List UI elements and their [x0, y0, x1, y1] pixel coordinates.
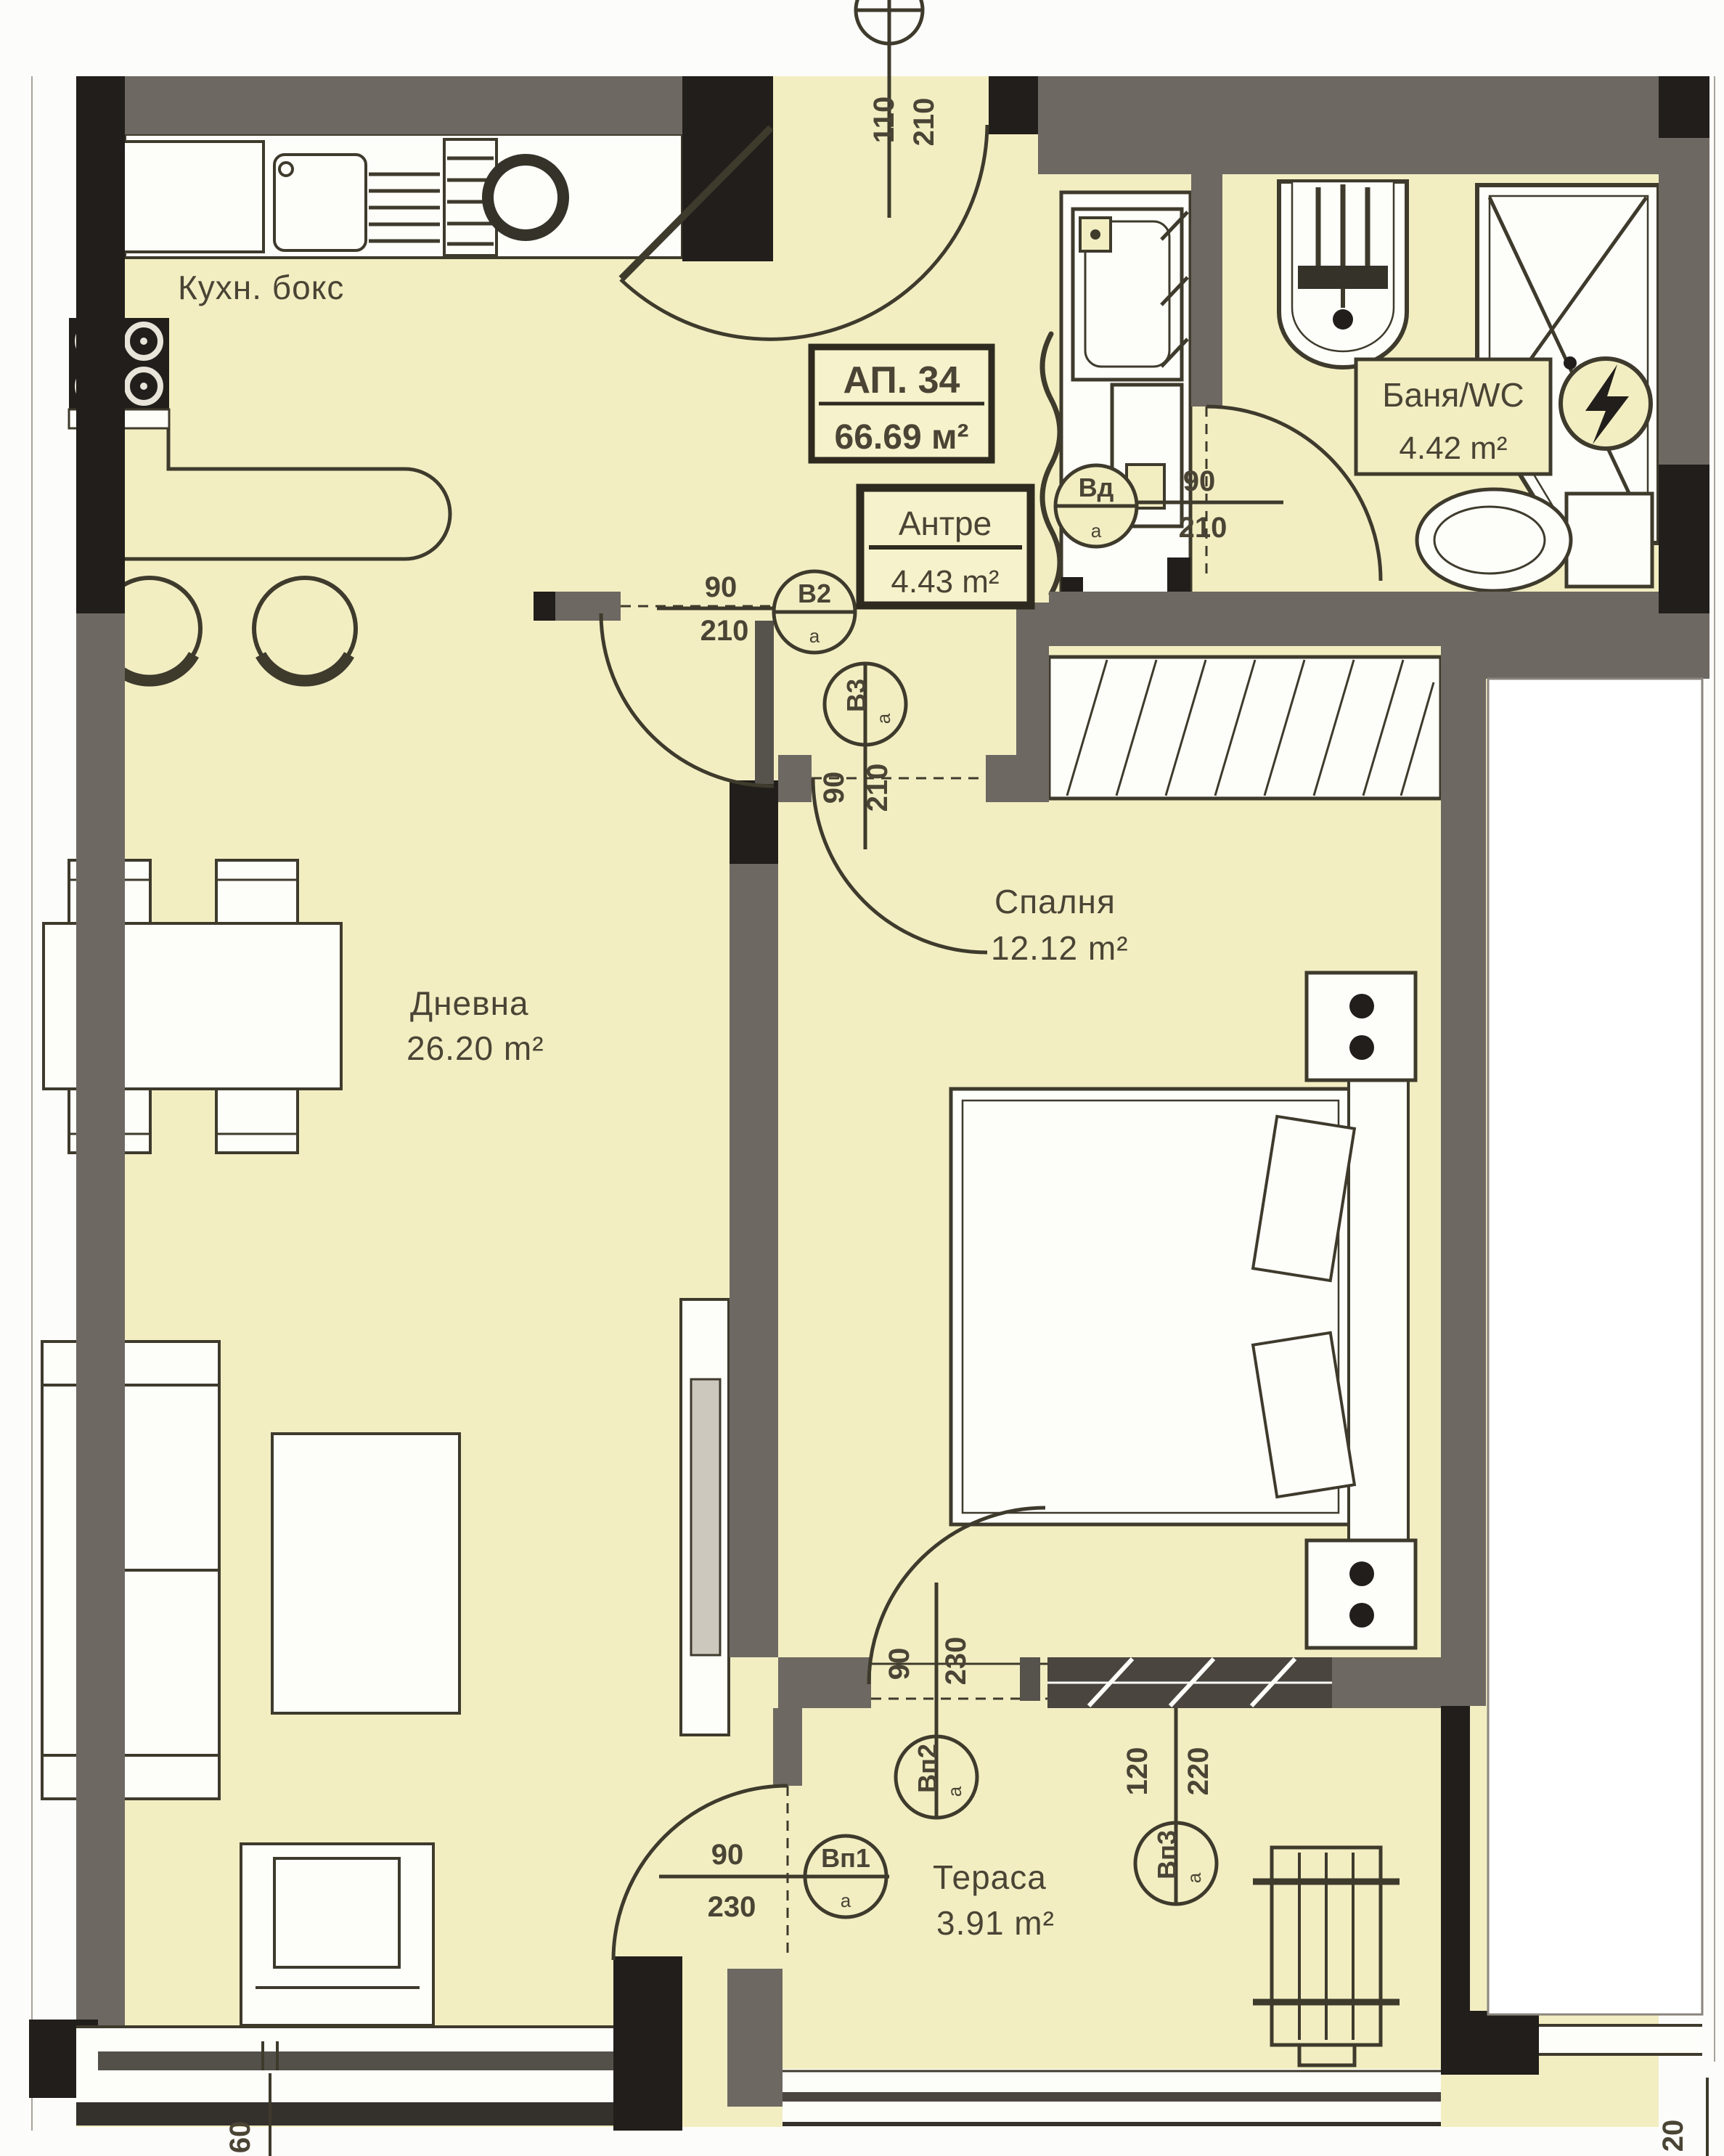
terrace-window	[1047, 1657, 1332, 1708]
column-entry-right	[989, 76, 1038, 134]
armchair	[241, 1844, 433, 2025]
bath-door-width: 90	[1183, 465, 1216, 497]
wall-bedroom-right	[1441, 646, 1486, 1706]
kitchen-area	[115, 134, 682, 258]
electrical-panel-icon	[1561, 359, 1651, 449]
bathroom-area: 4.42 m²	[1399, 430, 1507, 466]
wardrobe	[1049, 657, 1441, 799]
entry-dim-width: 110	[868, 97, 900, 144]
column-top-right	[1659, 76, 1709, 138]
living-door-tag: В2	[798, 579, 831, 608]
wall-top-bath	[1038, 76, 1709, 174]
bedroom-name: Спалня	[994, 883, 1116, 920]
wall-living-terrace	[773, 1708, 802, 1786]
shaft-railing	[1539, 2024, 1702, 2056]
terrace-railing	[783, 2069, 1441, 2127]
bedroom-door-tag-sub: а	[873, 713, 894, 724]
wall-terrace-jamb	[727, 1969, 783, 2107]
dining-chair	[216, 1087, 298, 1153]
shaft-strip	[1488, 679, 1702, 2014]
unit-area: 66.69 м²	[835, 418, 969, 457]
kitchen-hob-icon	[488, 160, 563, 235]
bedroom-door-tag: В3	[841, 679, 871, 712]
bed	[951, 1073, 1408, 1540]
unit-title: АП. 34	[843, 359, 960, 401]
washbasin	[1279, 181, 1407, 367]
edge-dim-right: 20	[1657, 2120, 1689, 2152]
living-terrace-height: 230	[708, 1891, 756, 1923]
hall-area: 4.43 m²	[891, 564, 999, 600]
edge-dim-left: 60	[224, 2121, 256, 2154]
living-name: Дневна	[410, 984, 529, 1022]
column-terrace-corner	[1441, 2011, 1539, 2075]
coffee-table	[272, 1434, 459, 1713]
floorplan-page: 110 210 90 210 90 210 90 210 90 230 90 2…	[0, 0, 1724, 2156]
hob-bar-1	[511, 176, 521, 219]
column-bottom-mid	[613, 1956, 682, 2131]
terrace-window-height: 220	[1182, 1747, 1214, 1796]
bedroom-terrace-tag: Вп2	[912, 1744, 942, 1793]
wall-bedroom-door-stub-r	[986, 755, 1016, 802]
wall-living-bedroom	[730, 780, 778, 1657]
bedroom-terrace-width: 90	[883, 1648, 915, 1681]
floorplan-drawing: 110 210 90 210 90 210 90 210 90 230 90 2…	[0, 0, 1724, 2156]
bath-door-height: 210	[1179, 512, 1227, 544]
bedroom-door-height: 210	[862, 764, 894, 812]
wall-terrace-top-l	[778, 1657, 871, 1708]
hall-name: Антре	[899, 505, 992, 542]
column-right-mid	[1659, 465, 1709, 613]
living-terrace-tag-sub: а	[841, 1890, 851, 1911]
wall-terrace-top-r	[1331, 1657, 1441, 1708]
terrace-window-width: 120	[1122, 1747, 1153, 1796]
tv-unit	[681, 1299, 729, 1735]
living-door-width: 90	[705, 571, 738, 603]
terrace-window-tag-sub: а	[1183, 1872, 1205, 1883]
shower-drain	[1564, 356, 1577, 369]
kitchen-label: Кухн. бокс	[178, 269, 344, 306]
wall-bedroom-top	[1049, 592, 1709, 646]
wall-hall-bath	[1191, 174, 1222, 407]
bath-door-tag-sub: а	[1091, 520, 1102, 542]
unit-title-box: АП. 34 66.69 м²	[812, 347, 992, 460]
living-terrace-tag: Вп1	[821, 1843, 870, 1873]
sofa	[42, 1342, 219, 1799]
living-terrace-width: 90	[711, 1839, 744, 1871]
living-area: 26.20 m²	[407, 1029, 544, 1067]
bedroom-door-width: 90	[818, 772, 850, 804]
living-window	[76, 2025, 613, 2126]
wall-stub-cap	[534, 592, 555, 621]
bedroom-terrace-door-leaf	[1020, 1657, 1040, 1701]
bath-door-tag: Вд	[1079, 473, 1114, 502]
bathroom-name: Баня/WC	[1382, 376, 1524, 414]
living-door-leaf	[755, 621, 774, 784]
bedroom-terrace-tag-sub: а	[944, 1786, 965, 1797]
toilet	[1417, 489, 1652, 591]
living-door-height: 210	[700, 615, 749, 647]
wall-corridor-right	[1016, 603, 1049, 802]
column-left	[76, 76, 125, 613]
dining-chair	[216, 860, 298, 926]
entry-dim-height: 210	[908, 98, 940, 147]
bedroom-area: 12.12 m²	[991, 929, 1129, 967]
bed-headboard	[1349, 1073, 1408, 1540]
hob-bar-2	[530, 176, 540, 219]
hall-label-box: Антре 4.43 m²	[860, 488, 1031, 605]
bathroom-label-box: Баня/WC 4.42 m²	[1356, 359, 1551, 474]
terrace-window-tag: Вп3	[1152, 1830, 1182, 1879]
bedroom-terrace-height: 230	[940, 1637, 972, 1686]
washbasin-drain	[1333, 309, 1353, 330]
wall-bedroom-door-stub-l	[778, 755, 812, 802]
living-door-tag-sub: а	[809, 625, 820, 647]
toilet-tank	[1566, 494, 1652, 587]
kitchen-base-cabinet	[115, 142, 263, 252]
terrace-name: Тераса	[933, 1858, 1047, 1896]
wall-top-kitchen	[76, 76, 682, 134]
column-corridor	[730, 780, 778, 864]
kitchen-sink-tap	[279, 163, 293, 176]
terrace-area: 3.91 m²	[936, 1904, 1055, 1942]
